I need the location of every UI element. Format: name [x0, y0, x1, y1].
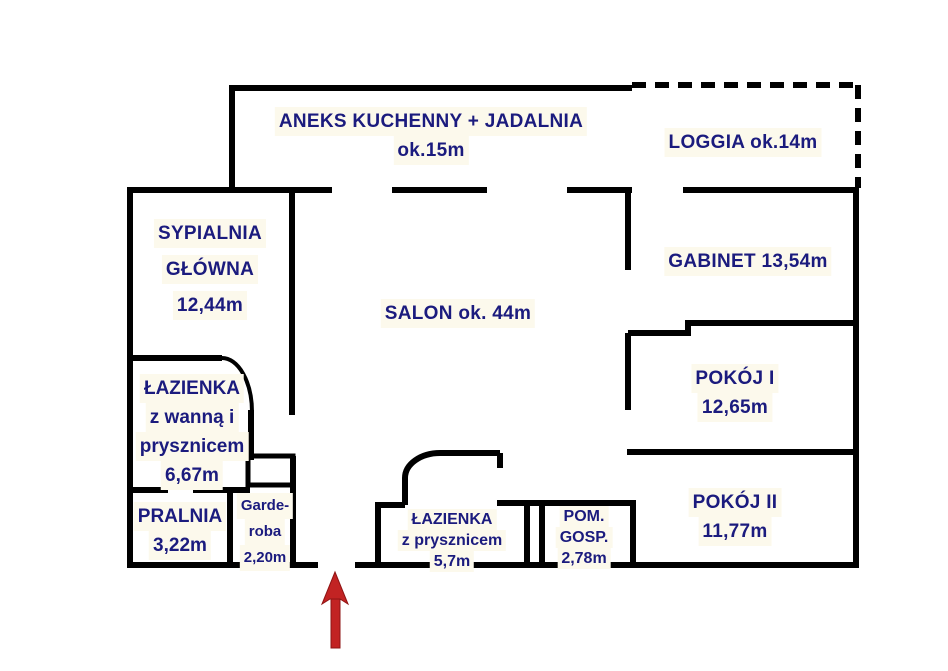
room-area: 3,22m	[149, 531, 211, 560]
room-label-pomgosp: POM. GOSP. 2,78m	[556, 506, 613, 569]
room-area: 5,7m	[430, 551, 474, 572]
room-name: Garde-	[237, 493, 293, 519]
room-name: GOSP.	[556, 527, 613, 548]
room-name: prysznicem	[136, 432, 249, 461]
room-area: ok.15m	[393, 136, 468, 165]
room-name: ANEKS KUCHENNY + JADALNIA	[275, 107, 587, 136]
room-label-garderoba: Garde- roba 2,20m	[237, 493, 293, 571]
room-area: 2,20m	[240, 545, 291, 571]
room-area: 6,67m	[161, 461, 223, 490]
room-name: PRALNIA	[134, 502, 226, 531]
room-name: LOGGIA ok.14m	[665, 128, 822, 157]
room-name: GABINET 13,54m	[664, 247, 831, 276]
wall-bathroom2-bump-top	[440, 453, 500, 468]
room-label-bathroom2: ŁAZIENKA z prysznicem 5,7m	[398, 509, 506, 572]
room-label-pokoj1: POKÓJ I 12,65m	[691, 364, 778, 422]
room-name: ŁAZIENKA	[140, 374, 244, 403]
entrance-arrow-shaft	[331, 596, 340, 648]
room-label-bathroom1: ŁAZIENKA z wanną i prysznicem 6,67m	[136, 374, 249, 490]
room-name: GŁÓWNA	[162, 255, 258, 284]
room-name: z prysznicem	[398, 530, 506, 551]
room-name: SYPIALNIA	[154, 219, 266, 248]
wall-bathroom2-bump-arc	[405, 453, 440, 478]
room-name: z wanną i	[146, 403, 238, 432]
room-name: roba	[245, 519, 286, 545]
room-label-bedroom: SYPIALNIA GŁÓWNA 12,44m	[154, 219, 266, 327]
room-label-salon: SALON ok. 44m	[381, 299, 535, 328]
room-label-pokoj2: POKÓJ II 11,77m	[689, 488, 782, 546]
room-area: 12,44m	[173, 291, 247, 320]
room-name: POKÓJ I	[691, 364, 778, 393]
room-name: POKÓJ II	[689, 488, 782, 517]
room-label-gabinet: GABINET 13,54m	[664, 247, 831, 276]
entrance-arrow-head	[322, 572, 348, 604]
shaft-box	[248, 456, 293, 485]
room-label-kitchen: ANEKS KUCHENNY + JADALNIA ok.15m	[275, 107, 587, 165]
room-area: 11,77m	[698, 517, 771, 546]
room-area: 2,78m	[557, 548, 610, 569]
room-label-pralnia: PRALNIA 3,22m	[134, 502, 226, 560]
room-name: SALON ok. 44m	[381, 299, 535, 328]
entrance-arrow	[322, 572, 348, 648]
floor-plan: ANEKS KUCHENNY + JADALNIA ok.15m LOGGIA …	[0, 0, 948, 671]
room-name: POM.	[560, 506, 609, 527]
room-area: 12,65m	[698, 393, 772, 422]
room-name: ŁAZIENKA	[408, 509, 497, 530]
room-label-loggia: LOGGIA ok.14m	[665, 128, 822, 157]
